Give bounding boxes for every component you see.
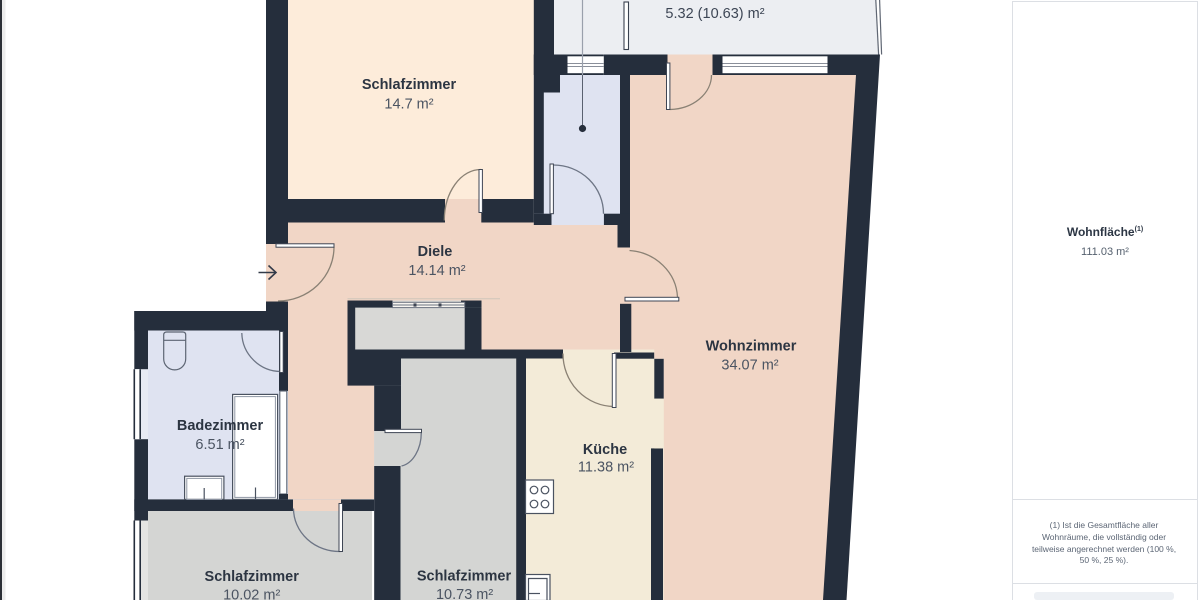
svg-text:10.73 m²: 10.73 m² <box>436 587 493 600</box>
svg-text:6.51 m²: 6.51 m² <box>195 437 244 453</box>
svg-text:Diele: Diele <box>418 244 453 260</box>
svg-text:5.32 (10.63) m²: 5.32 (10.63) m² <box>665 6 764 22</box>
svg-text:14.7 m²: 14.7 m² <box>384 97 433 113</box>
svg-text:Schlafzimmer: Schlafzimmer <box>362 77 457 93</box>
svg-text:Küche: Küche <box>583 442 627 458</box>
svg-text:Badezimmer: Badezimmer <box>177 418 264 434</box>
svg-text:11.38 m²: 11.38 m² <box>578 459 634 475</box>
svg-text:14.14 m²: 14.14 m² <box>408 263 465 279</box>
svg-text:10.02 m²: 10.02 m² <box>223 587 280 600</box>
svg-text:Wohnzimmer: Wohnzimmer <box>706 339 797 355</box>
svg-text:Schlafzimmer: Schlafzimmer <box>205 569 300 585</box>
svg-text:Schlafzimmer: Schlafzimmer <box>417 569 512 585</box>
svg-text:34.07 m²: 34.07 m² <box>721 358 778 374</box>
